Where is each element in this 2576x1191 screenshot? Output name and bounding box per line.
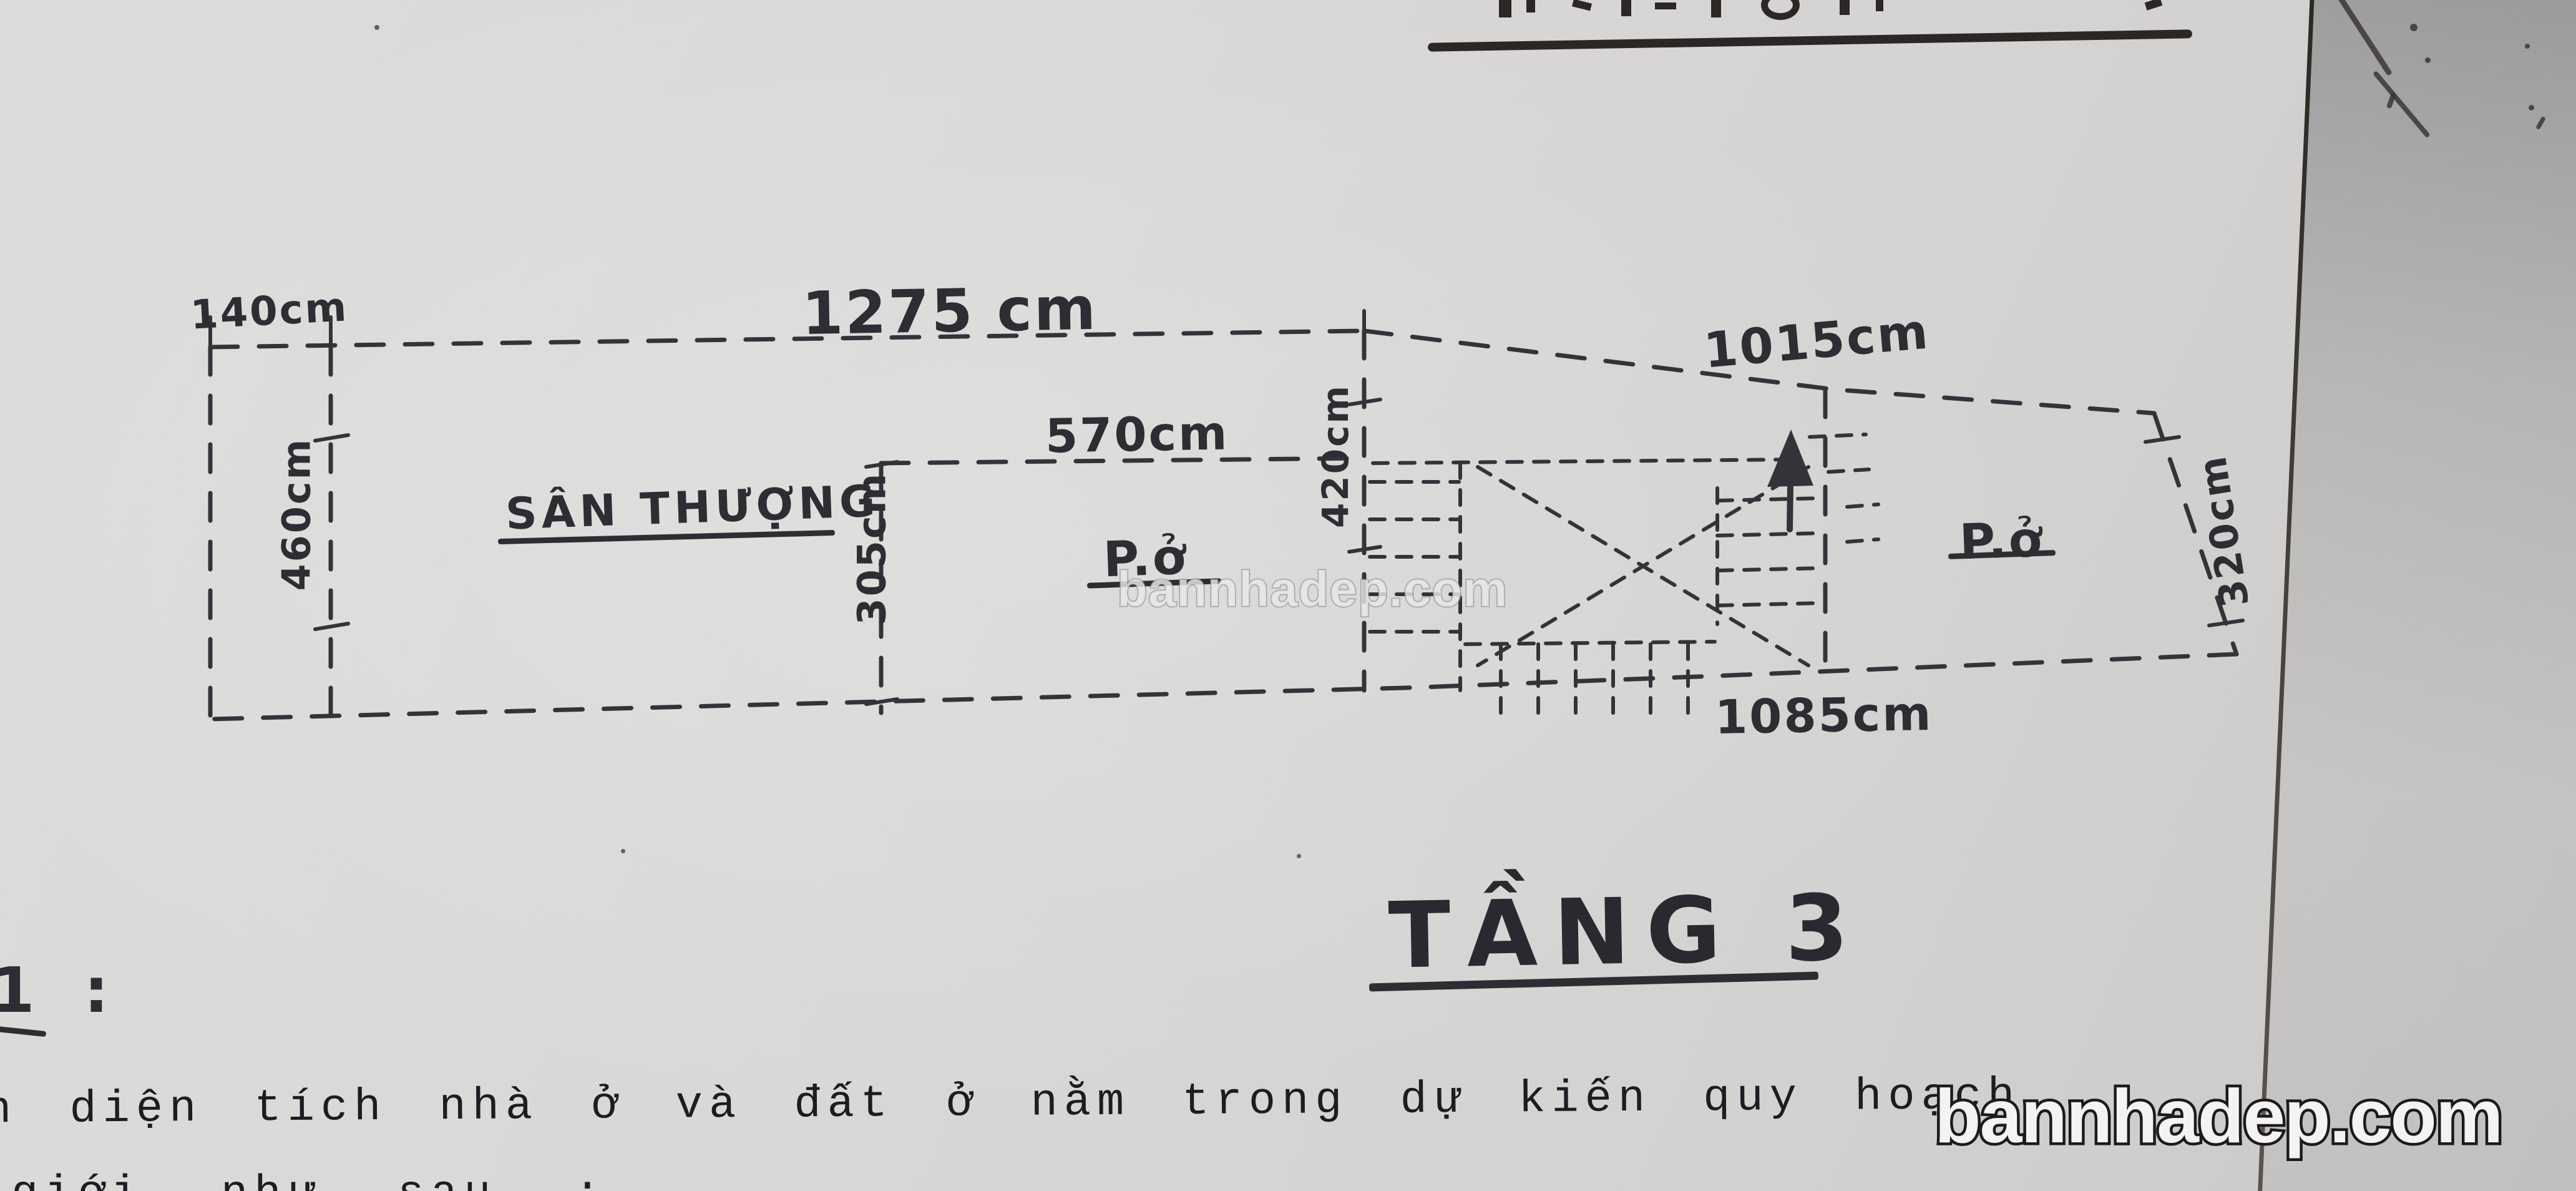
room-label-right: P.ở <box>1958 512 2044 571</box>
dim-setback-width: 140cm <box>189 284 349 338</box>
dim-left-width: 1275 cm <box>801 275 1098 348</box>
watermark-corner: bannhadep.com <box>1934 1072 2502 1160</box>
typed-text-line2: giới như sau : <box>11 1169 607 1191</box>
dim-rear-width: 1085cm <box>1714 686 1933 745</box>
dim-left-depth: 460cm <box>274 454 320 591</box>
watermark-center: bannhadep.com <box>1117 561 1508 618</box>
scanned-floorplan-page: 140cm 1275 cm 1015cm 570cm 460cm 305cm 4… <box>0 0 2576 1191</box>
margin-note: 1 : <box>0 954 109 1027</box>
dim-stair-bay-depth: 420cm <box>1314 391 1357 528</box>
dim-middle-room-width: 570cm <box>1045 405 1229 463</box>
